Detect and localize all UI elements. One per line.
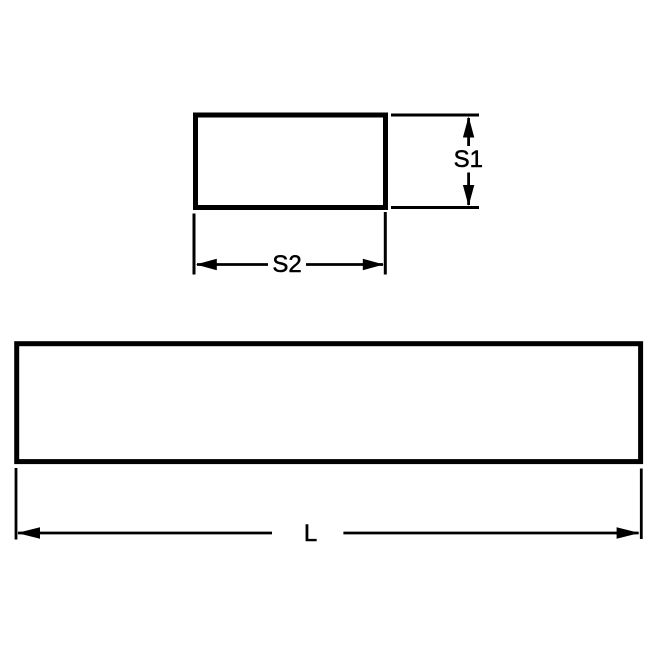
svg-text:S1: S1 [454,146,483,173]
svg-text:L: L [304,520,317,547]
svg-text:S2: S2 [272,251,301,278]
